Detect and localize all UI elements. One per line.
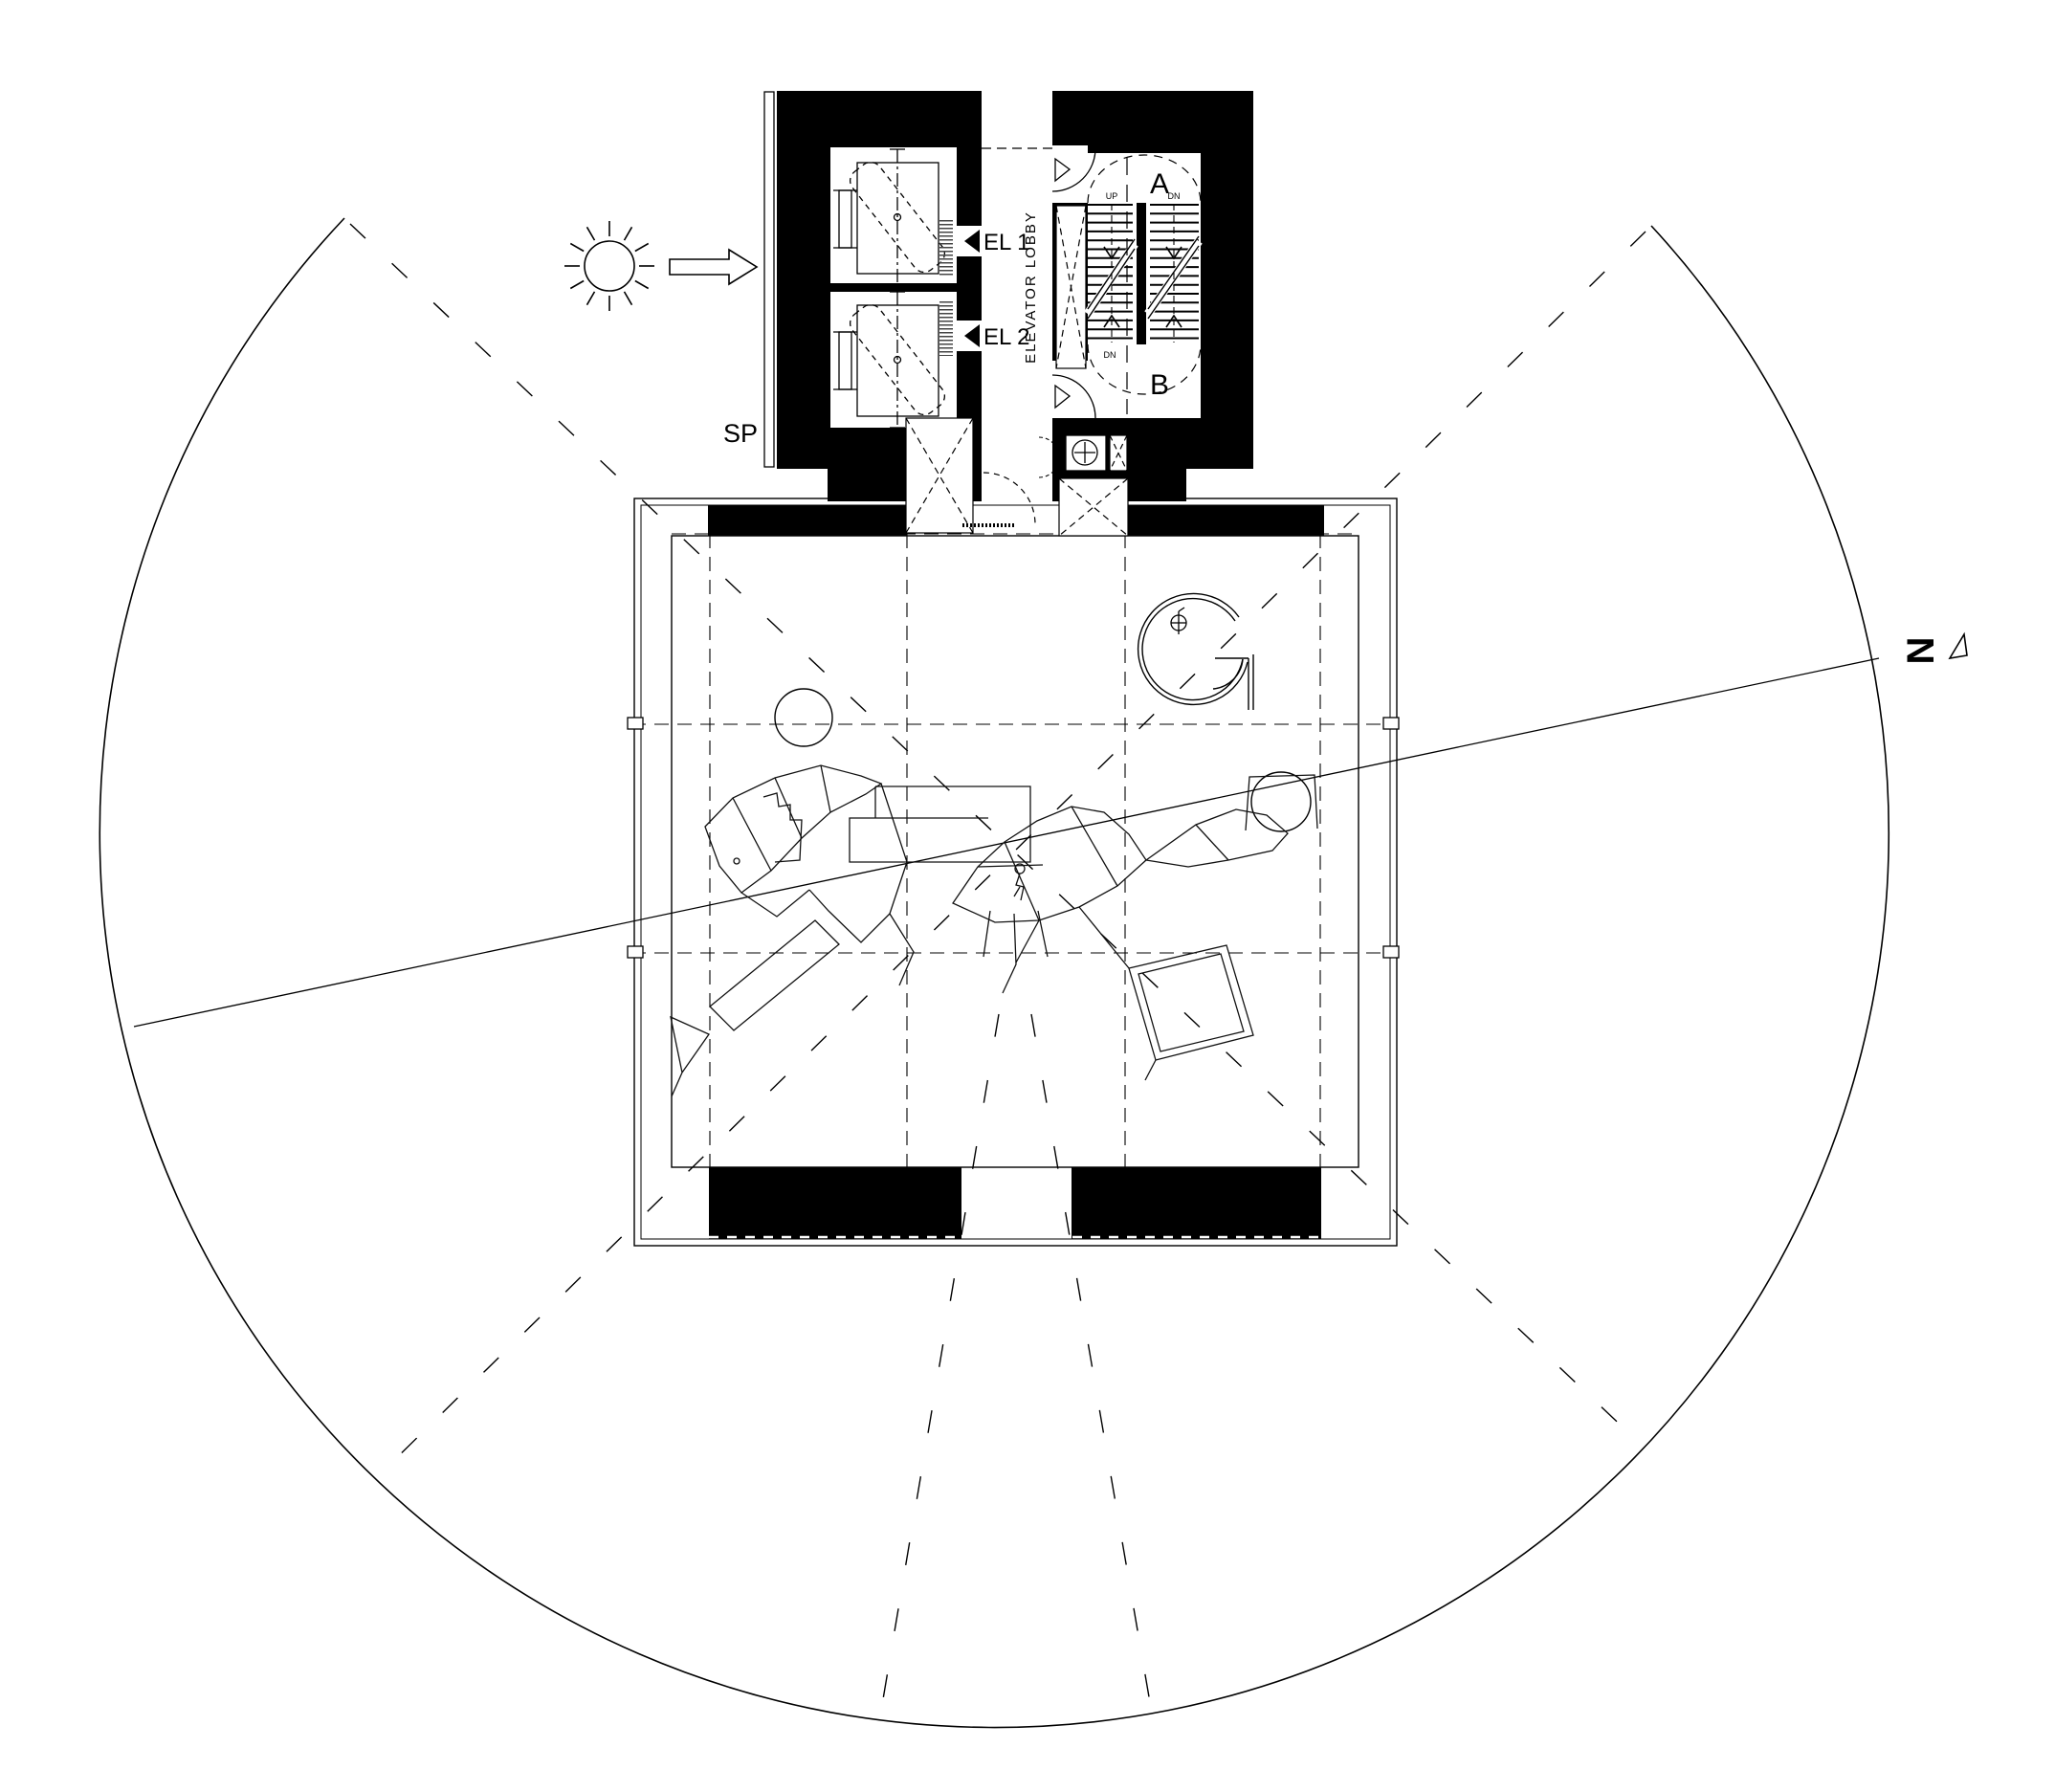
sun-icon — [564, 221, 654, 311]
stair-a-up-label: UP — [1106, 191, 1118, 201]
column-circle-left — [775, 689, 832, 746]
shaft-x-bottom-left — [906, 418, 973, 533]
floor-plan-canvas: N — [0, 0, 2055, 1792]
circle-cross-icon — [1171, 608, 1186, 634]
room-outer-wall — [634, 498, 1397, 1246]
stair-a-dn-label: DN — [1168, 191, 1181, 201]
light-direction-arrow-icon — [670, 250, 757, 284]
sun-rays — [564, 221, 654, 311]
structural-grid — [631, 534, 1395, 1167]
room-inner-wall — [672, 536, 1359, 1167]
north-label: N — [1898, 637, 1940, 665]
stair-a-label: A — [1150, 168, 1169, 200]
wc-room — [1066, 435, 1106, 471]
shaft-x-tall — [1056, 206, 1086, 368]
floor-plan-drawing: N — [0, 0, 2055, 1792]
stair-b-label: B — [1150, 369, 1169, 401]
service-core: EL 1 EL 2 ELEVATOR LOBBY — [723, 91, 1253, 536]
stair-center-wall — [1137, 203, 1146, 344]
fan-line-left — [881, 1014, 999, 1711]
spiral-wall — [1138, 593, 1253, 710]
column-circle-right — [1251, 772, 1311, 831]
north-arrow-icon — [1950, 634, 1967, 658]
sculpture-installation — [671, 765, 1317, 1096]
north-line — [134, 658, 1879, 1027]
room-outer-wall-inner-line — [641, 505, 1390, 1239]
sp-label: SP — [723, 419, 758, 448]
shaft-x-bottom-right — [1059, 478, 1128, 536]
stair-b-dn-label: DN — [1104, 350, 1116, 360]
sp-screen-panel — [764, 92, 774, 467]
shaft-x-small — [1110, 435, 1127, 471]
gallery-room — [628, 498, 1399, 1246]
elevator-lobby-label: ELEVATOR LOBBY — [1023, 210, 1039, 364]
fan-line-right — [1031, 1014, 1152, 1714]
